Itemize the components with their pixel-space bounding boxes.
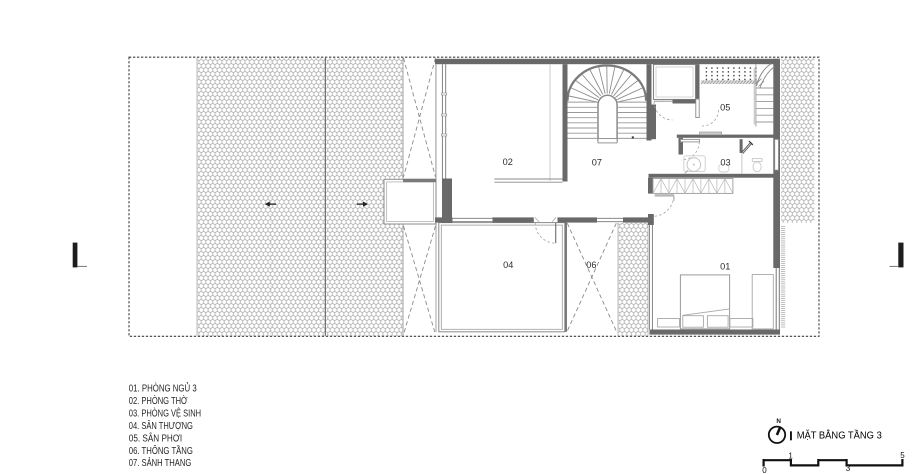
svg-text:05. SÂN PHƠI: 05. SÂN PHƠI [129, 434, 182, 445]
svg-text:05: 05 [720, 103, 730, 113]
svg-text:02. PHÒNG THỜ: 02. PHÒNG THỜ [129, 396, 188, 407]
svg-text:3: 3 [846, 464, 851, 473]
svg-text:02: 02 [503, 157, 513, 167]
svg-text:03. PHÒNG VỆ SINH: 03. PHÒNG VỆ SINH [129, 409, 201, 420]
svg-text:07. SẢNH THANG: 07. SẢNH THANG [129, 457, 192, 469]
svg-text:01: 01 [720, 262, 730, 272]
svg-text:04. SÂN THƯỢNG: 04. SÂN THƯỢNG [129, 421, 193, 432]
svg-text:0: 0 [762, 466, 767, 474]
svg-text:1: 1 [788, 452, 793, 461]
svg-text:5: 5 [900, 451, 905, 460]
svg-text:07: 07 [592, 158, 602, 168]
svg-text:06. THÔNG TẦNG: 06. THÔNG TẦNG [129, 446, 193, 457]
svg-text:04: 04 [503, 260, 513, 270]
svg-text:MẶT BẰNG TẦNG 3: MẶT BẰNG TẦNG 3 [797, 429, 882, 442]
svg-text:N: N [776, 418, 781, 425]
svg-text:01. PHÒNG NGỦ 3: 01. PHÒNG NGỦ 3 [129, 382, 197, 394]
svg-text:06: 06 [586, 260, 596, 270]
svg-text:03: 03 [720, 158, 730, 168]
